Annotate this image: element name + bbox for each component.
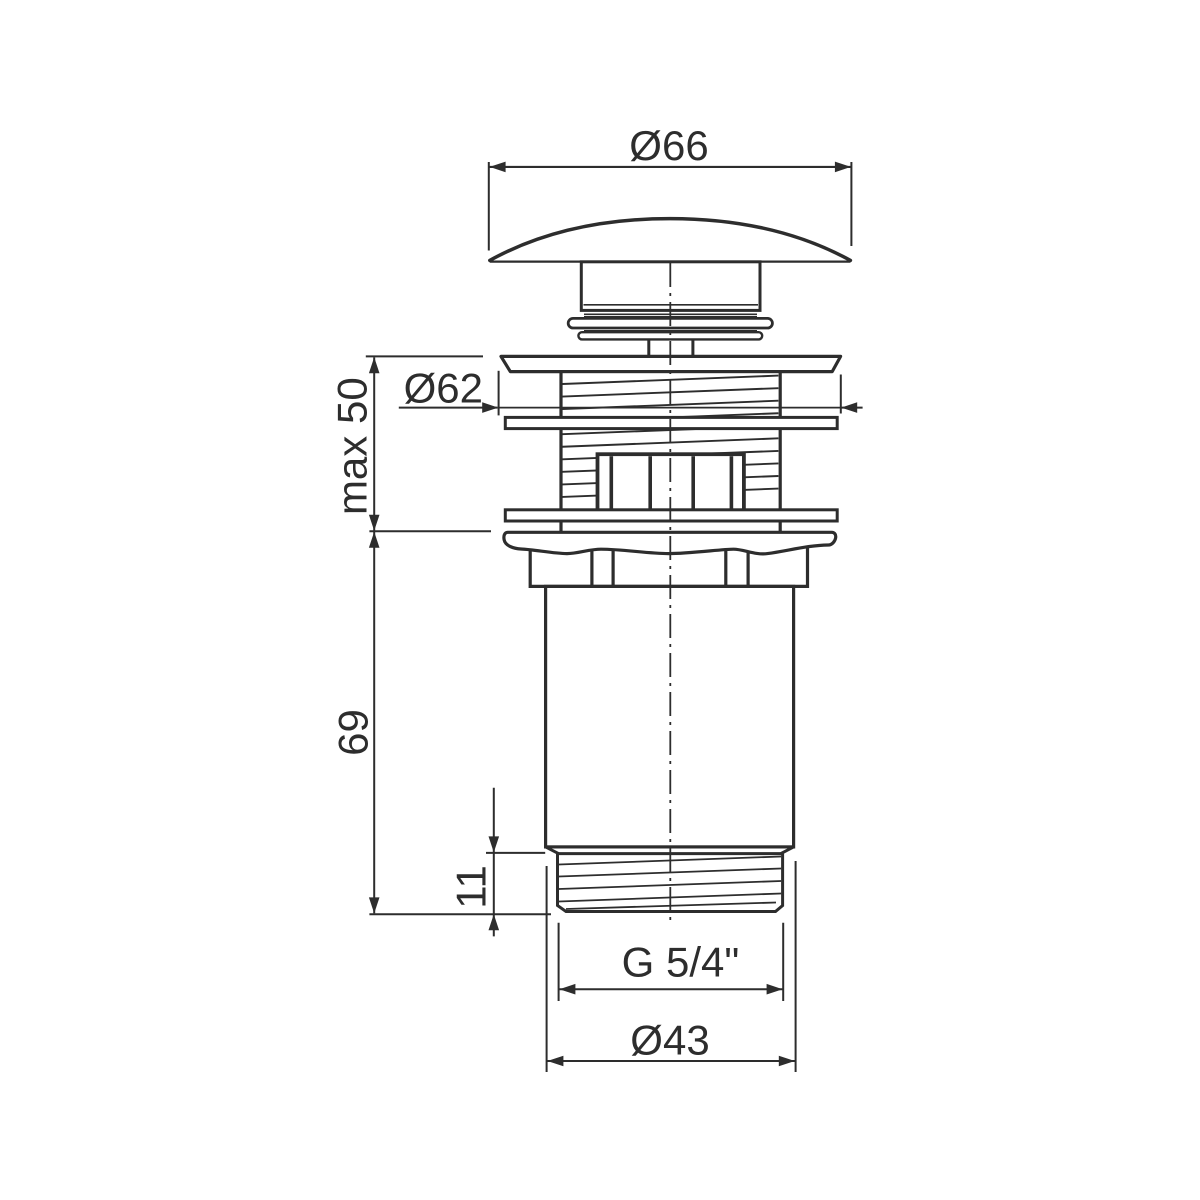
svg-text:Ø66: Ø66 (629, 122, 708, 169)
svg-text:69: 69 (330, 709, 377, 756)
svg-text:11: 11 (448, 865, 495, 909)
svg-text:max 50: max 50 (329, 377, 376, 515)
svg-text:G 5/4": G 5/4" (622, 938, 740, 985)
svg-text:Ø43: Ø43 (630, 1017, 709, 1064)
svg-text:Ø62: Ø62 (404, 365, 483, 412)
